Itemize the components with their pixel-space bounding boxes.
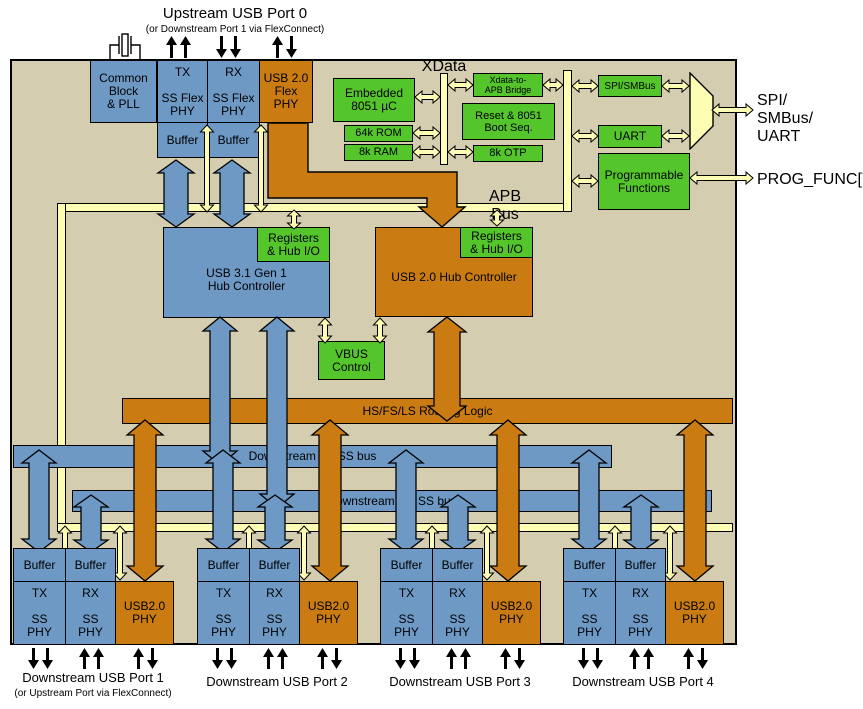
buffer-hub-arrow [158, 160, 194, 227]
rx-in-arrow [643, 648, 654, 669]
phy-apb-arrow [254, 125, 268, 212]
uart-block: UART [598, 125, 662, 148]
tx-out-arrow [409, 648, 420, 669]
upstream-rx-buffer: Buffer [207, 122, 260, 158]
port-group-1: Buffer Buffer TX SS PHY RX SS PHY USB2.0… [13, 445, 174, 709]
rxbus-buffer-arrow [441, 495, 475, 552]
usb2-down-arrow [286, 36, 297, 58]
usb2-up-arrow [133, 648, 144, 669]
port-rx-buffer: Buffer [65, 548, 116, 582]
buffer-hub-arrow [214, 160, 250, 227]
rx-in-arrow [79, 648, 90, 669]
mcu-xdata-arrow [415, 91, 440, 103]
tx-out-arrow [212, 648, 223, 669]
port-tx-ss-phy: TX SS PHY [380, 581, 433, 645]
port-rx-ss-phy: RX SS PHY [432, 581, 483, 645]
mux-io-arrow [712, 104, 753, 116]
rom-xdata-arrow [413, 127, 440, 139]
apb-bus-label: APB Bus [478, 188, 532, 224]
port-rx-buffer: Buffer [432, 548, 483, 582]
hub20-routing-arrow [428, 317, 466, 421]
tx-out-arrow [578, 648, 589, 669]
embedded-8051: Embedded 8051 µC [333, 78, 415, 122]
port-tx-buffer: Buffer [380, 548, 433, 582]
phy-apb-arrow [200, 125, 214, 212]
port-group-2: Buffer Buffer TX SS PHY RX SS PHY USB2.0… [197, 445, 358, 709]
spi-smbus-uart-io-label: SPI/ SMBus/ UART [757, 92, 837, 146]
rxbus-buffer-arrow [74, 495, 108, 552]
reset-boot-seq: Reset & 8051 Boot Seq. [462, 103, 555, 140]
programmable-functions-block: Programmable Functions [598, 153, 690, 210]
tx-out-arrow [28, 648, 39, 669]
diagram-canvas: Upstream USB Port 0 (or Downstream Port … [0, 0, 863, 709]
port-usb2-phy: USB2.0 PHY [482, 581, 541, 645]
usb2-down-arrow [147, 648, 158, 669]
port-label: Downstream USB Port 3 [360, 675, 560, 689]
port-label: Downstream USB Port 1 [0, 671, 193, 685]
vbus-arrow [318, 318, 332, 343]
port-label: Downstream USB Port 4 [543, 675, 743, 689]
usb2-flex-phy: USB 2.0 Flex PHY [259, 60, 313, 123]
tx-out-arrow [226, 648, 237, 669]
usb2-up-arrow [500, 648, 511, 669]
xdata-apb-bridge: Xdata-to- APB Bridge [473, 73, 543, 97]
rx-in-arrow [263, 648, 274, 669]
tx-out-arrow [592, 648, 603, 669]
port-usb2-phy: USB2.0 PHY [299, 581, 358, 645]
port-rx-ss-phy: RX SS PHY [249, 581, 300, 645]
vbus-control-block: VBUS Control [318, 341, 385, 380]
usb20-registers-hub-io: Registers & Hub I/O [460, 227, 533, 258]
ram-xdata-arrow [413, 146, 440, 158]
crystal-icon [100, 30, 150, 62]
apb-uart-arrow [572, 130, 598, 142]
port-label: Downstream USB Port 2 [177, 675, 377, 689]
usb2-up-arrow [317, 648, 328, 669]
apb-spi-arrow [572, 80, 598, 92]
uart-mux-arrow [662, 130, 689, 142]
rx-in-arrow [277, 648, 288, 669]
port-rx-buffer: Buffer [249, 548, 300, 582]
port-usb2-phy: USB2.0 PHY [115, 581, 174, 645]
prog-io-arrow [690, 172, 753, 184]
tx-out-arrow [395, 648, 406, 669]
rxbus-buffer-arrow [258, 495, 292, 552]
reg-apb-arrow [490, 210, 504, 226]
rxbus-buffer-arrow [624, 495, 658, 552]
txbus-buffer-arrow [389, 450, 423, 552]
port-tx-ss-phy: TX SS PHY [563, 581, 616, 645]
txbus-buffer-arrow [206, 450, 240, 552]
rx-in-arrow [230, 36, 241, 58]
port-rx-ss-phy: RX SS PHY [615, 581, 666, 645]
txbus-buffer-arrow [22, 450, 56, 552]
spi-smbus-block: SPI/SMBus [598, 75, 662, 97]
reg-apb-arrow [287, 210, 301, 229]
rx-in-arrow [216, 36, 227, 58]
vbus-arrow [373, 318, 387, 343]
common-block-pll: Common Block & PLL [90, 60, 157, 123]
port-tx-ss-phy: TX SS PHY [197, 581, 250, 645]
usb2-up-arrow [272, 36, 283, 58]
rx-in-arrow [460, 648, 471, 669]
rx-in-arrow [629, 648, 640, 669]
port-rx-ss-phy: RX SS PHY [65, 581, 116, 645]
xdata-bridge-arrow [448, 79, 473, 91]
tx-out-arrow [180, 36, 191, 58]
rx-in-arrow [93, 648, 104, 669]
prog-func-io-label: PROG_FUNC[7:1] [757, 171, 863, 189]
port-tx-buffer: Buffer [563, 548, 616, 582]
tx-out-arrow [166, 36, 177, 58]
xdata-otp-arrow [448, 146, 473, 158]
port-group-3: Buffer Buffer TX SS PHY RX SS PHY USB2.0… [380, 445, 541, 709]
hub31-txbus-arrow [203, 317, 237, 465]
port-group-4: Buffer Buffer TX SS PHY RX SS PHY USB2.0… [563, 445, 724, 709]
txbus-buffer-arrow [572, 450, 606, 552]
usb31-registers-hub-io: Registers & Hub I/O [257, 227, 330, 262]
usb2-down-arrow [331, 648, 342, 669]
tx-out-arrow [42, 648, 53, 669]
xdata-bus-label: XData [414, 58, 474, 76]
usb2-down-arrow [697, 648, 708, 669]
usb2-down-arrow [514, 648, 525, 669]
port-usb2-phy: USB2.0 PHY [665, 581, 724, 645]
port-tx-ss-phy: TX SS PHY [13, 581, 66, 645]
bridge-apb-arrow [543, 79, 563, 91]
usb2-up-arrow [683, 648, 694, 669]
spi-mux-arrow [662, 80, 689, 92]
apb-prog-arrow [572, 175, 598, 187]
tx-ss-flex-phy: TX SS Flex PHY [157, 60, 208, 123]
port-tx-buffer: Buffer [13, 548, 66, 582]
port-rx-buffer: Buffer [615, 548, 666, 582]
port-tx-buffer: Buffer [197, 548, 250, 582]
otp-8k: 8k OTP [473, 145, 543, 162]
rx-in-arrow [446, 648, 457, 669]
upstream-port-title: Upstream USB Port 0 [85, 6, 385, 22]
apb-vertical-bar [563, 70, 572, 212]
rx-ss-flex-phy: RX SS Flex PHY [207, 60, 260, 123]
port-sublabel: (or Upstream Port via FlexConnect) [0, 688, 193, 699]
